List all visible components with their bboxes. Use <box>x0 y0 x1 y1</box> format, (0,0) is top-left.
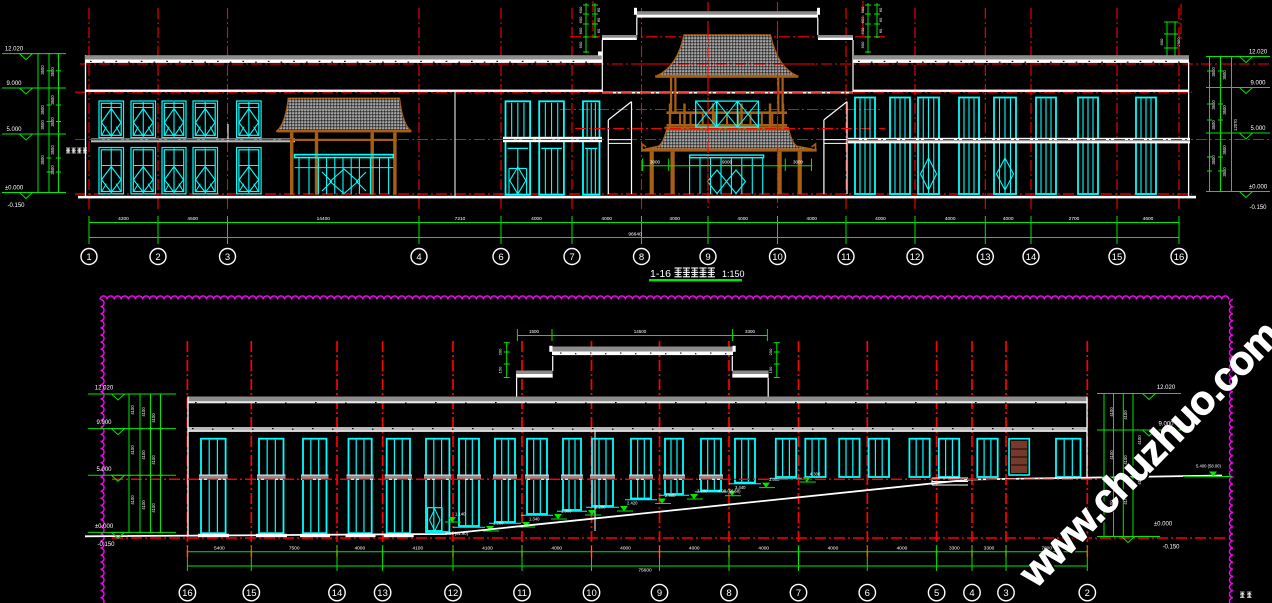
svg-text:3500: 3500 <box>1222 105 1227 115</box>
svg-text:3.200: 3.200 <box>697 489 708 494</box>
svg-text:150: 150 <box>498 366 503 373</box>
svg-text:3500: 3500 <box>40 155 45 165</box>
svg-text:1.340: 1.340 <box>529 517 540 522</box>
svg-text:8: 8 <box>639 252 644 263</box>
svg-text:1500: 1500 <box>529 329 540 334</box>
svg-text:-0.150: -0.150 <box>1249 205 1267 211</box>
svg-text:4000: 4000 <box>689 546 700 552</box>
svg-text:6: 6 <box>865 588 870 599</box>
svg-text:4100: 4100 <box>130 495 135 505</box>
svg-text:1-16: 1-16 <box>650 268 671 280</box>
svg-text:13: 13 <box>377 588 388 599</box>
svg-text:4000: 4000 <box>737 216 748 222</box>
svg-text:3: 3 <box>225 252 230 263</box>
svg-text:3500: 3500 <box>40 105 45 115</box>
svg-text:2.200: 2.200 <box>595 505 606 510</box>
svg-text:2: 2 <box>1085 588 1090 599</box>
svg-text:3500: 3500 <box>1222 70 1227 80</box>
svg-text:60: 60 <box>878 7 883 12</box>
svg-text:4000: 4000 <box>758 546 769 552</box>
svg-text:600: 600 <box>578 41 583 48</box>
svg-text:3500: 3500 <box>1211 120 1216 130</box>
svg-text:10: 10 <box>772 252 783 263</box>
svg-text:12: 12 <box>910 252 921 263</box>
svg-text:4100: 4100 <box>482 546 493 552</box>
svg-text:4100: 4100 <box>151 455 156 465</box>
svg-text:9.000: 9.000 <box>1250 81 1266 87</box>
svg-text:1:150: 1:150 <box>722 269 745 279</box>
svg-text:600: 600 <box>860 16 865 23</box>
svg-text:4100: 4100 <box>412 546 423 552</box>
svg-text:15: 15 <box>1112 252 1123 263</box>
svg-text:11: 11 <box>517 588 527 599</box>
svg-text:4100: 4100 <box>130 405 135 415</box>
svg-text:4100: 4100 <box>151 413 156 423</box>
svg-text:600: 600 <box>860 6 865 13</box>
svg-text:3500: 3500 <box>1211 155 1216 165</box>
svg-text:7: 7 <box>569 252 574 263</box>
svg-text:6: 6 <box>498 252 503 263</box>
svg-text:3500: 3500 <box>1211 100 1216 110</box>
svg-text:9.000: 9.000 <box>96 420 112 426</box>
svg-text:±0.000: ±0.000 <box>95 524 114 530</box>
svg-text:96640: 96640 <box>628 232 642 238</box>
svg-text:4000: 4000 <box>669 216 680 222</box>
svg-text:7500: 7500 <box>289 546 300 552</box>
svg-text:4.08 (56.58): 4.08 (56.58) <box>718 489 741 494</box>
svg-text:4000: 4000 <box>897 546 908 552</box>
svg-text:3500: 3500 <box>40 120 45 130</box>
svg-text:4100: 4100 <box>141 407 146 417</box>
svg-text:4: 4 <box>416 252 421 263</box>
svg-text:600: 600 <box>578 27 583 34</box>
svg-text:3300: 3300 <box>949 546 960 552</box>
svg-text:9: 9 <box>657 588 662 599</box>
svg-text:4100: 4100 <box>1109 407 1114 417</box>
svg-text:12.020: 12.020 <box>1249 50 1268 56</box>
svg-text:-0.150: -0.150 <box>97 542 115 548</box>
svg-text:4000: 4000 <box>620 546 631 552</box>
svg-text:±0.000: ±0.000 <box>1154 522 1173 528</box>
svg-text:2.900: 2.900 <box>665 493 676 498</box>
svg-text:±0.000: ±0.000 <box>1249 185 1268 191</box>
svg-text:16: 16 <box>1174 252 1185 263</box>
svg-text:600: 600 <box>578 6 583 13</box>
svg-text:3500: 3500 <box>50 95 55 105</box>
svg-text:4000: 4000 <box>945 216 956 222</box>
svg-text:3500: 3500 <box>1222 167 1227 177</box>
svg-text:4000: 4000 <box>828 546 839 552</box>
svg-text:14: 14 <box>332 588 343 599</box>
svg-text:2.420: 2.420 <box>627 501 638 506</box>
svg-text:4100: 4100 <box>130 445 135 455</box>
svg-text:3500: 3500 <box>50 117 55 127</box>
svg-text:5.000: 5.000 <box>1250 126 1266 132</box>
svg-text:3300: 3300 <box>745 329 756 334</box>
svg-text:4: 4 <box>969 588 974 599</box>
svg-text:200: 200 <box>768 348 773 355</box>
svg-text:4000: 4000 <box>1003 216 1014 222</box>
svg-text:4100: 4100 <box>141 500 146 510</box>
svg-text:2900: 2900 <box>1176 37 1181 47</box>
svg-text:60: 60 <box>596 7 601 12</box>
svg-text:75600: 75600 <box>638 568 652 574</box>
svg-text:4200: 4200 <box>118 216 129 222</box>
svg-text:7: 7 <box>796 588 801 599</box>
svg-text:150: 150 <box>768 366 773 373</box>
svg-text:16: 16 <box>182 588 193 599</box>
svg-text:1.900: 1.900 <box>561 509 572 514</box>
svg-text:4100: 4100 <box>151 503 156 513</box>
svg-text:13: 13 <box>980 252 991 263</box>
svg-text:60: 60 <box>878 28 883 33</box>
svg-text:4600: 4600 <box>1143 216 1154 222</box>
svg-text:9000: 9000 <box>722 160 733 165</box>
svg-text:4000: 4000 <box>551 546 562 552</box>
svg-text:12.020: 12.020 <box>1157 385 1176 391</box>
svg-text:9: 9 <box>705 252 710 263</box>
svg-text:3500: 3500 <box>1222 145 1227 155</box>
svg-text:5.000: 5.000 <box>6 127 22 133</box>
svg-text:-0.150: -0.150 <box>7 203 25 209</box>
svg-text:4.300: 4.300 <box>810 472 821 477</box>
svg-text:15: 15 <box>246 588 257 599</box>
svg-text:60: 60 <box>878 17 883 22</box>
svg-text:3500: 3500 <box>40 65 45 75</box>
svg-text:12.020: 12.020 <box>95 386 114 392</box>
svg-text:-0.150: -0.150 <box>1162 545 1180 551</box>
svg-text:4000: 4000 <box>531 216 542 222</box>
svg-text:1.260: 1.260 <box>493 521 504 526</box>
svg-text:3500: 3500 <box>1211 67 1216 77</box>
svg-text:5400: 5400 <box>214 546 225 552</box>
svg-text:5.000: 5.000 <box>96 467 112 473</box>
svg-text:200: 200 <box>498 348 503 355</box>
svg-text:4100: 4100 <box>1123 410 1128 420</box>
svg-text:4000: 4000 <box>354 546 365 552</box>
svg-text:5: 5 <box>934 588 939 599</box>
svg-text:±0.000: ±0.000 <box>5 186 24 192</box>
svg-text:11: 11 <box>841 252 851 263</box>
svg-text:60: 60 <box>596 17 601 22</box>
svg-text:14: 14 <box>1026 252 1037 263</box>
svg-text:3500: 3500 <box>50 165 55 175</box>
svg-text:2: 2 <box>155 252 160 263</box>
svg-text:10: 10 <box>586 588 597 599</box>
svg-text:12070: 12070 <box>1233 119 1238 131</box>
svg-text:4100: 4100 <box>141 450 146 460</box>
svg-text:4500: 4500 <box>187 216 198 222</box>
svg-text:3300: 3300 <box>984 546 995 552</box>
svg-text:1.140: 1.140 <box>455 512 466 517</box>
svg-text:1: 1 <box>86 252 91 263</box>
svg-text:900: 900 <box>1159 38 1164 45</box>
svg-text:7210: 7210 <box>455 216 466 222</box>
svg-text:4000: 4000 <box>601 216 612 222</box>
svg-text:3500: 3500 <box>50 67 55 77</box>
svg-text:9.000: 9.000 <box>6 81 22 87</box>
svg-text:14400: 14400 <box>317 216 331 222</box>
svg-text:14500: 14500 <box>634 329 647 334</box>
svg-text:4000: 4000 <box>806 216 817 222</box>
svg-text:12: 12 <box>448 588 459 599</box>
svg-text:5.400 (58.00): 5.400 (58.00) <box>1196 464 1222 469</box>
svg-text:60: 60 <box>596 28 601 33</box>
svg-text:3: 3 <box>1003 588 1008 599</box>
svg-text:4000: 4000 <box>875 216 886 222</box>
svg-text:3000: 3000 <box>793 160 804 165</box>
svg-text:3500: 3500 <box>50 145 55 155</box>
svg-text:600: 600 <box>860 27 865 34</box>
svg-text:8: 8 <box>726 588 731 599</box>
svg-text:600: 600 <box>578 16 583 23</box>
svg-text:12.020: 12.020 <box>5 47 24 53</box>
svg-text:2700: 2700 <box>1069 216 1080 222</box>
svg-text:600: 600 <box>860 41 865 48</box>
svg-text:3000: 3000 <box>650 160 661 165</box>
